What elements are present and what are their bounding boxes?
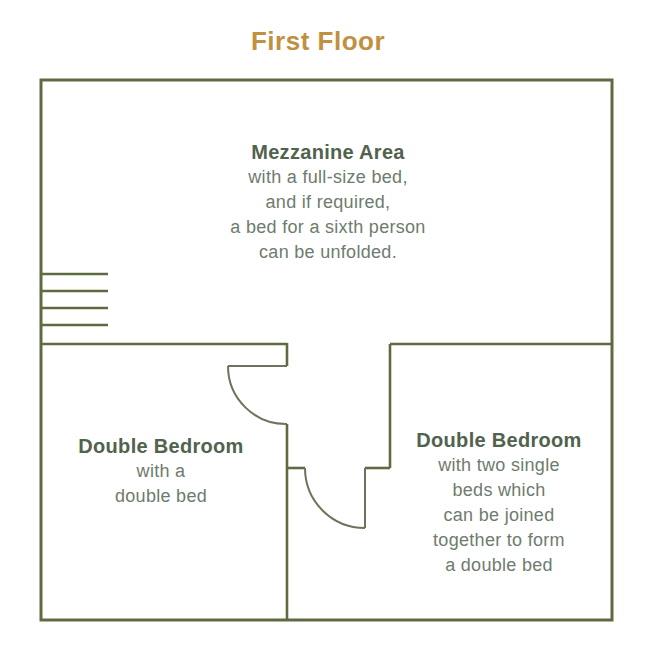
right-bedroom-desc-line: beds which	[416, 478, 581, 503]
right-bedroom-desc-line: together to form	[416, 528, 581, 553]
mezzanine-desc-line: and if required,	[230, 190, 425, 215]
mezzanine-desc-line: with a full-size bed,	[230, 165, 425, 190]
left-bedroom-desc-line: with a	[78, 459, 243, 484]
left-bedroom-desc-line: double bed	[78, 484, 243, 509]
mezzanine-label: Mezzanine Area with a full-size bed, and…	[230, 140, 425, 265]
right-bedroom-desc-line: with two single	[416, 453, 581, 478]
mezzanine-room-name: Mezzanine Area	[230, 140, 425, 165]
right-bedroom-room-name: Double Bedroom	[416, 428, 581, 453]
right-bedroom-desc-line: can be joined	[416, 503, 581, 528]
left-bedroom-door-icon	[228, 366, 287, 424]
stairs-icon	[41, 274, 108, 325]
mezzanine-desc-line: a bed for a sixth person	[230, 215, 425, 240]
right-bedroom-label: Double Bedroom with two single beds whic…	[416, 428, 581, 578]
floor-plan-page: First Floor	[0, 0, 650, 650]
right-bedroom-door-icon	[305, 468, 365, 528]
left-bedroom-label: Double Bedroom with a double bed	[78, 434, 243, 509]
left-bedroom-room-name: Double Bedroom	[78, 434, 243, 459]
right-bedroom-desc-line: a double bed	[416, 553, 581, 578]
mezzanine-desc-line: can be unfolded.	[230, 240, 425, 265]
